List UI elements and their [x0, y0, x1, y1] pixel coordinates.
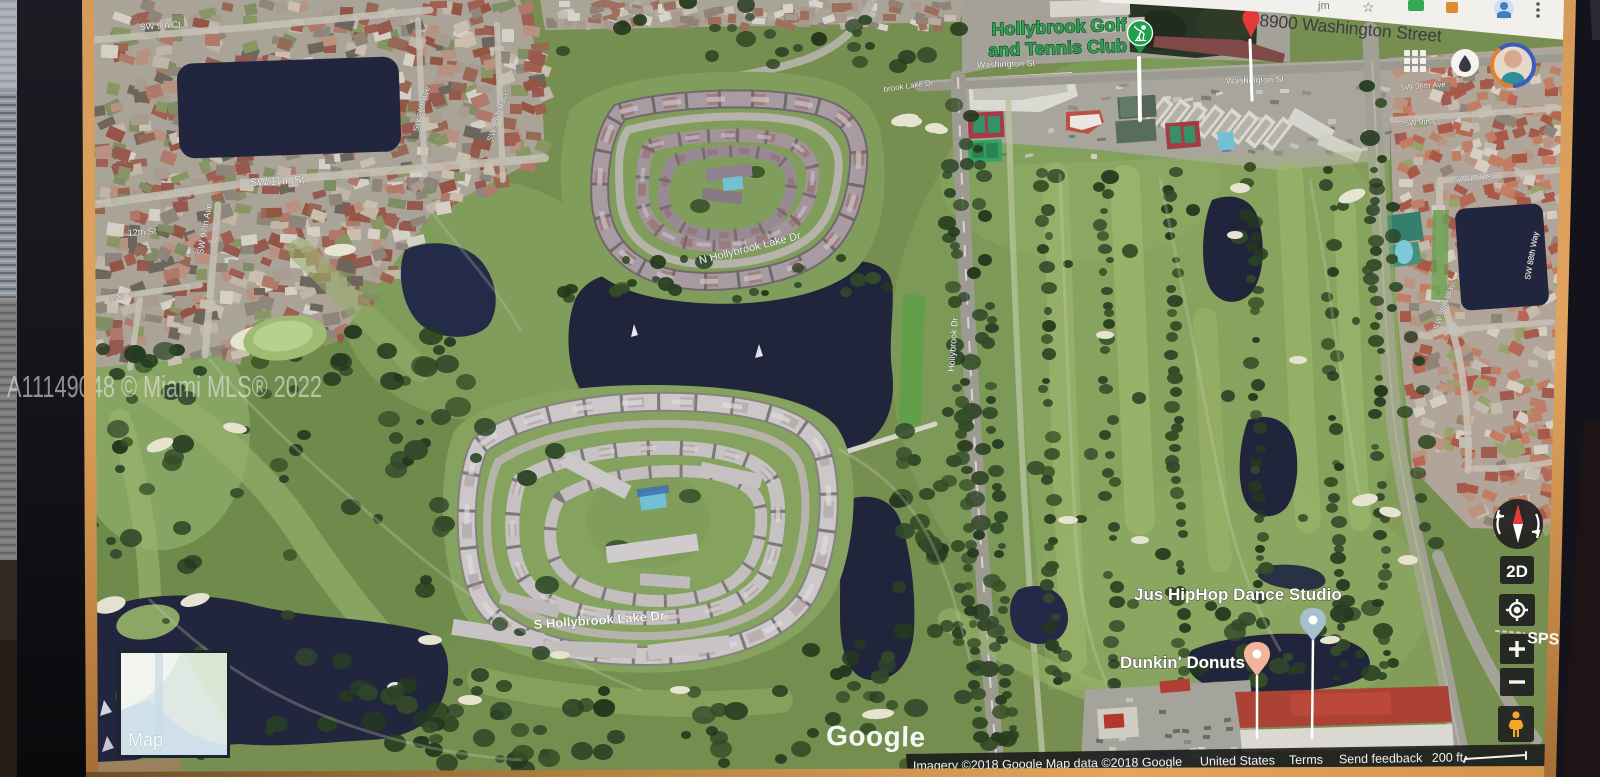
svg-text:Map: Map	[128, 730, 163, 750]
svg-text:☆: ☆	[1362, 0, 1375, 15]
svg-text:SPS: SPS	[1527, 630, 1560, 649]
svg-text:A11149048 © Miami MLS® 2022: A11149048 © Miami MLS® 2022	[7, 369, 322, 404]
svg-text:200 ft: 200 ft	[1432, 750, 1464, 764]
svg-text:Terms: Terms	[1289, 753, 1323, 768]
svg-text:Google: Google	[826, 720, 926, 753]
svg-text:Send feedback: Send feedback	[1339, 751, 1423, 766]
svg-text:2D: 2D	[1506, 562, 1528, 581]
svg-text:Jus HipHop Dance Studio: Jus HipHop Dance Studio	[1134, 585, 1342, 604]
svg-text:United States: United States	[1200, 753, 1275, 768]
svg-text:jm: jm	[1317, 0, 1330, 12]
svg-text:Dunkin' Donuts: Dunkin' Donuts	[1120, 653, 1245, 672]
